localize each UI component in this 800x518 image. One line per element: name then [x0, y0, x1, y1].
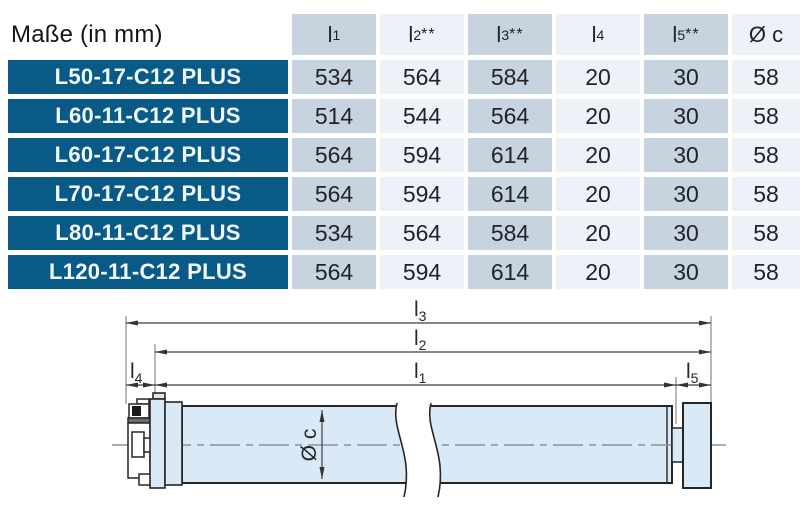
- cell-r0-l4: 20: [556, 60, 640, 94]
- label-diameter-c: Ø c: [298, 429, 321, 462]
- cell-r3-dc: 58: [732, 177, 800, 211]
- cell-r5-l2: 594: [380, 255, 464, 289]
- cell-r0-dc: 58: [732, 60, 800, 94]
- cell-r5-l1: 564: [292, 255, 376, 289]
- cell-r0-l3: 584: [468, 60, 552, 94]
- table-title: Maße (in mm): [8, 14, 288, 55]
- cell-r1-l3: 564: [468, 99, 552, 133]
- cell-r0-l2: 564: [380, 60, 464, 94]
- row-label-l60-11-c12-plus: L60-11-C12 PLUS: [8, 99, 288, 133]
- motor-collar: [150, 393, 182, 488]
- cell-r4-l5: 30: [644, 216, 728, 250]
- label-l2: l2: [414, 327, 427, 353]
- column-header-diameter: Ø c: [732, 14, 800, 55]
- cell-r4-l2: 564: [380, 216, 464, 250]
- cell-r3-l2: 594: [380, 177, 464, 211]
- cell-r4-dc: 58: [732, 216, 800, 250]
- column-header-l2: l2**: [380, 14, 464, 55]
- header-l1-base: l: [328, 24, 333, 46]
- column-header-l1: l1: [292, 14, 376, 55]
- cell-r5-l5: 30: [644, 255, 728, 289]
- row-label-l70-17-c12-plus: L70-17-C12 PLUS: [8, 177, 288, 211]
- cell-r1-dc: 58: [732, 99, 800, 133]
- motor-dimension-drawing: l3 l2 l1 l4 l5 Ø c: [0, 290, 800, 518]
- cell-r3-l5: 30: [644, 177, 728, 211]
- label-l4: l4: [130, 360, 143, 386]
- row-label-l80-11-c12-plus: L80-11-C12 PLUS: [8, 216, 288, 250]
- row-label-l50-17-c12-plus: L50-17-C12 PLUS: [8, 60, 288, 94]
- motor-drawing: [112, 393, 726, 497]
- row-label-l60-17-c12-plus: L60-17-C12 PLUS: [8, 138, 288, 172]
- motor-head-bracket: [128, 399, 151, 485]
- cell-r3-l4: 20: [556, 177, 640, 211]
- cell-r2-dc: 58: [732, 138, 800, 172]
- cell-r1-l2: 544: [380, 99, 464, 133]
- cell-r5-l3: 614: [468, 255, 552, 289]
- header-l4-base: l: [592, 24, 597, 46]
- cell-r1-l1: 514: [292, 99, 376, 133]
- cell-r4-l1: 534: [292, 216, 376, 250]
- label-l3: l3: [414, 298, 427, 324]
- column-header-l3: l3**: [468, 14, 552, 55]
- cell-r0-l1: 534: [292, 60, 376, 94]
- motor-end-cap: [672, 403, 711, 488]
- cell-r2-l3: 614: [468, 138, 552, 172]
- cell-r2-l5: 30: [644, 138, 728, 172]
- cell-r1-l5: 30: [644, 99, 728, 133]
- cell-r2-l1: 564: [292, 138, 376, 172]
- cell-r2-l2: 594: [380, 138, 464, 172]
- dimensions-table: Maße (in mm) l1 l2** l3** l4 l5** Ø c L5…: [8, 14, 800, 289]
- cell-r5-l4: 20: [556, 255, 640, 289]
- label-l5: l5: [686, 360, 699, 386]
- cell-r3-l1: 564: [292, 177, 376, 211]
- cell-r1-l4: 20: [556, 99, 640, 133]
- row-label-l120-11-c12-plus: L120-11-C12 PLUS: [8, 255, 288, 289]
- header-diameter-base: Ø c: [749, 24, 783, 46]
- label-l1: l1: [414, 360, 427, 386]
- column-header-l4: l4: [556, 14, 640, 55]
- datasheet-page: Maße (in mm) l1 l2** l3** l4 l5** Ø c L5…: [0, 0, 800, 518]
- cell-r3-l3: 614: [468, 177, 552, 211]
- cell-r4-l3: 584: [468, 216, 552, 250]
- cell-r0-l5: 30: [644, 60, 728, 94]
- cell-r2-l4: 20: [556, 138, 640, 172]
- column-header-l5: l5**: [644, 14, 728, 55]
- cell-r4-l4: 20: [556, 216, 640, 250]
- cell-r5-dc: 58: [732, 255, 800, 289]
